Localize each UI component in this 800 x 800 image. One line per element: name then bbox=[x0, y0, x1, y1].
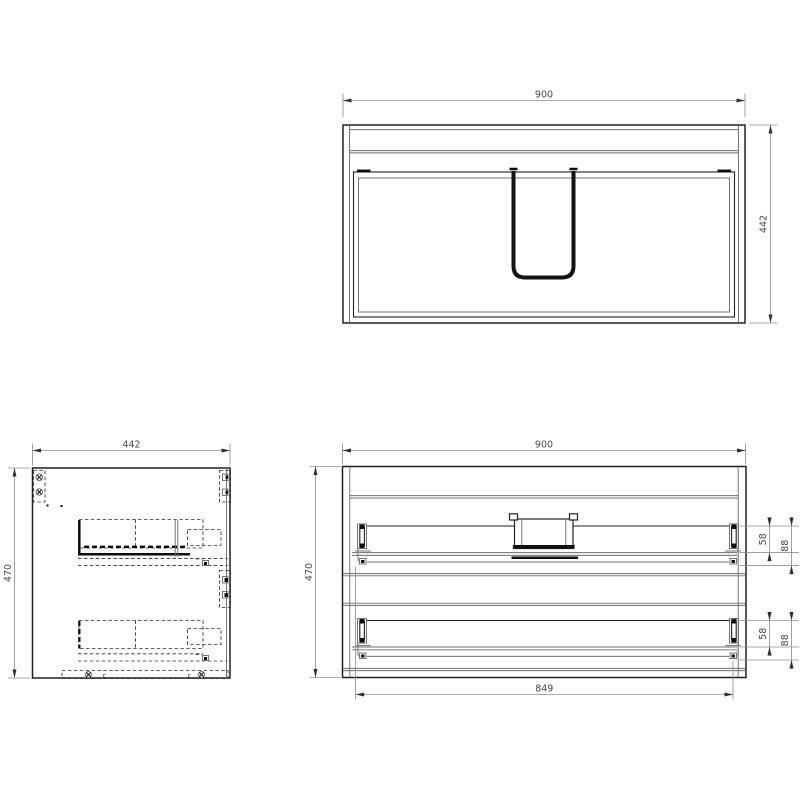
front-view: 900 470 849 58 bbox=[304, 440, 799, 700]
dim-front-height: 470 bbox=[304, 467, 341, 678]
dim-label: 88 bbox=[780, 634, 791, 646]
arrowhead bbox=[725, 693, 734, 697]
clip-icon bbox=[223, 474, 229, 481]
dim-label: 442 bbox=[759, 215, 770, 233]
arrowhead bbox=[789, 660, 793, 669]
drawer-slide-row-top bbox=[352, 514, 741, 564]
arrowhead bbox=[343, 99, 352, 103]
dim-front-width: 900 bbox=[343, 440, 746, 465]
dim-top-width: 900 bbox=[343, 90, 745, 118]
arrowhead bbox=[343, 449, 352, 453]
clip-icon bbox=[223, 592, 229, 599]
arrowhead bbox=[769, 315, 773, 324]
clip-letter: c bbox=[188, 672, 192, 680]
side-view: c c 442 470 bbox=[3, 440, 231, 680]
arrowhead bbox=[737, 99, 746, 103]
dim-label: 442 bbox=[122, 440, 140, 451]
dim-label: 58 bbox=[758, 533, 769, 545]
u-cutout bbox=[514, 171, 574, 278]
slide-foot-bracket bbox=[196, 559, 209, 566]
dim-drawer-top: 58 88 bbox=[740, 517, 800, 575]
arrowhead bbox=[767, 612, 771, 621]
arrowhead bbox=[222, 449, 231, 453]
pin-mark bbox=[47, 505, 49, 507]
hanger-block-left bbox=[34, 471, 46, 503]
clip-block-right-top bbox=[220, 471, 231, 503]
side-view-outline bbox=[33, 468, 231, 678]
arrowhead bbox=[33, 449, 42, 453]
arrowhead bbox=[737, 449, 746, 453]
technical-drawing-page: 900 442 bbox=[0, 0, 800, 800]
arrowhead bbox=[767, 518, 771, 527]
dim-drawer-bottom: 58 88 bbox=[740, 612, 800, 670]
screw-icon bbox=[36, 474, 43, 481]
screw-icon bbox=[198, 672, 204, 678]
dim-label: 470 bbox=[3, 564, 14, 582]
arrowhead bbox=[789, 612, 793, 621]
dim-side-width: 442 bbox=[33, 440, 231, 466]
dim-top-depth: 442 bbox=[749, 125, 778, 323]
drawer-box-inner bbox=[359, 178, 730, 312]
clip-icon bbox=[223, 577, 229, 584]
clip-icon bbox=[223, 489, 229, 496]
arrowhead bbox=[767, 553, 771, 562]
arrowhead bbox=[789, 566, 793, 575]
slide-bracket-left bbox=[355, 619, 371, 659]
arrowhead bbox=[769, 125, 773, 134]
arrowhead bbox=[356, 693, 365, 697]
dim-label: 900 bbox=[535, 440, 553, 451]
screw-icon bbox=[85, 672, 91, 678]
dim-slide-span: 849 bbox=[356, 567, 733, 700]
drawer-box-outer bbox=[354, 172, 735, 317]
vanity-cabinet-drawing: 900 442 bbox=[0, 0, 800, 800]
arrowhead bbox=[767, 647, 771, 656]
clip-letter: c bbox=[103, 672, 107, 680]
drawer-slide-row-bottom bbox=[352, 619, 741, 659]
slide-foot-bracket bbox=[196, 655, 209, 661]
top-view-outline bbox=[343, 125, 745, 323]
dim-label: 900 bbox=[535, 90, 553, 101]
top-view: 900 442 bbox=[343, 90, 778, 324]
pin-mark bbox=[61, 505, 63, 507]
drawer-slide-lower bbox=[78, 621, 228, 662]
arrowhead bbox=[13, 670, 17, 679]
arrowhead bbox=[13, 468, 17, 477]
drawer-slide-upper bbox=[78, 520, 228, 566]
dim-label: 470 bbox=[304, 563, 315, 581]
arrowhead bbox=[314, 669, 318, 678]
dim-side-height: 470 bbox=[3, 468, 30, 678]
dim-label: 849 bbox=[535, 684, 553, 695]
arrowhead bbox=[314, 467, 318, 476]
dim-label: 88 bbox=[780, 540, 791, 552]
screw-icon bbox=[36, 489, 43, 496]
arrowhead bbox=[789, 518, 793, 527]
slide-bracket-left bbox=[355, 524, 371, 564]
dim-label: 58 bbox=[758, 628, 769, 640]
